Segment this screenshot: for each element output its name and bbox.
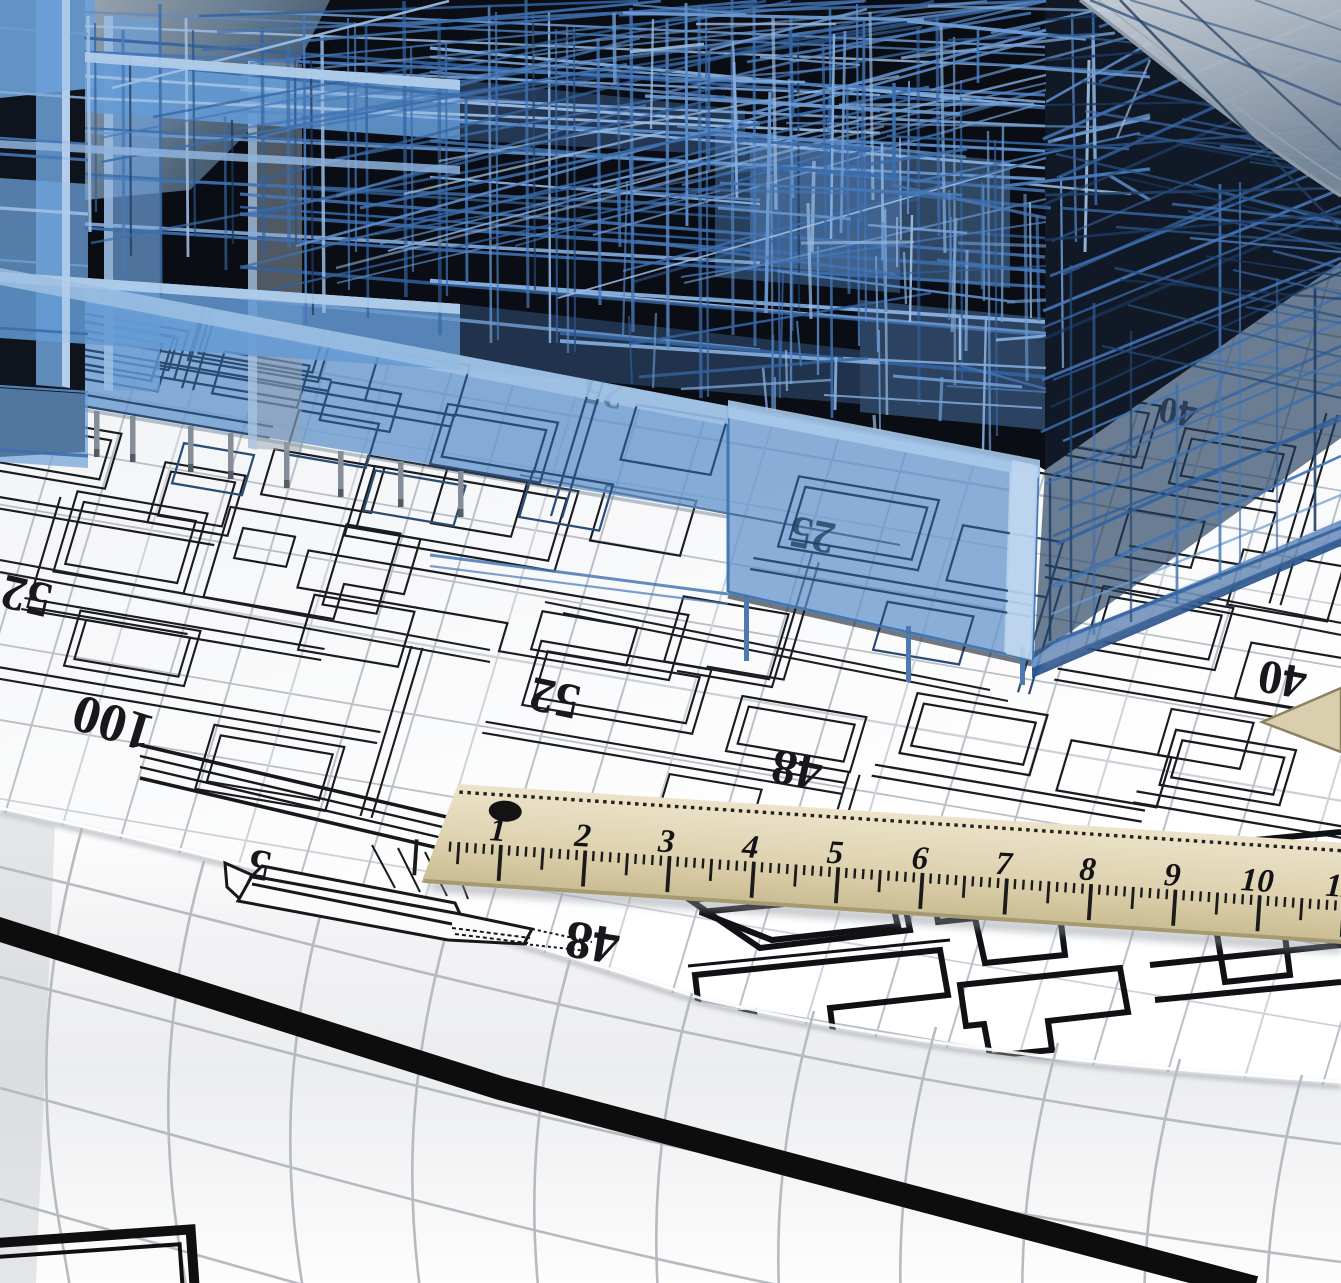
svg-text:9: 9 xyxy=(1163,857,1182,894)
svg-text:2: 2 xyxy=(572,818,592,855)
svg-text:25: 25 xyxy=(785,506,840,565)
svg-text:4: 4 xyxy=(740,829,760,866)
svg-text:8: 8 xyxy=(1078,851,1097,888)
svg-text:48: 48 xyxy=(561,909,624,977)
svg-text:6: 6 xyxy=(911,840,930,877)
svg-text:40: 40 xyxy=(1254,649,1310,710)
svg-text:5: 5 xyxy=(826,835,845,872)
svg-text:3: 3 xyxy=(656,823,676,860)
svg-text:1: 1 xyxy=(488,812,507,849)
svg-text:10: 10 xyxy=(1240,862,1275,900)
svg-text:11: 11 xyxy=(1324,868,1341,906)
